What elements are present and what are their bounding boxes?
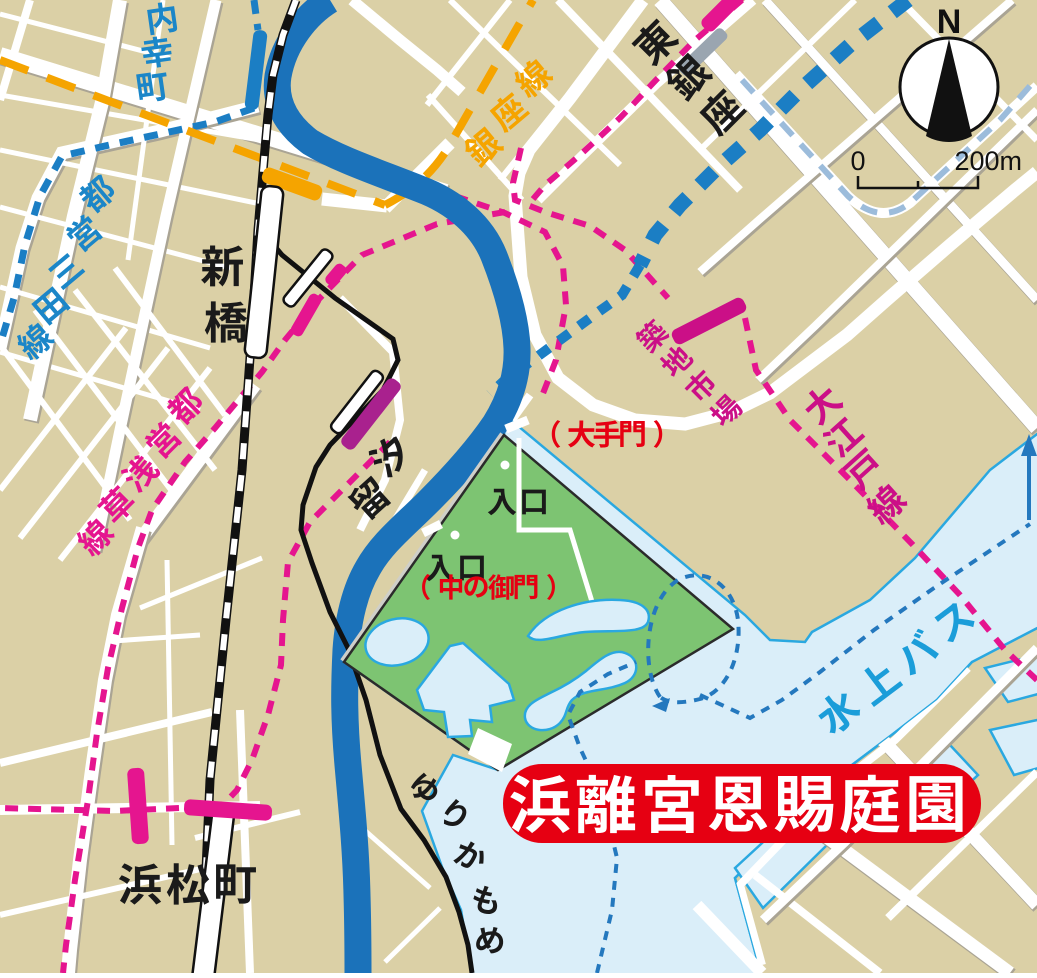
svg-text:200m: 200m [954,146,1022,176]
svg-text:0: 0 [850,146,865,176]
svg-text:N: N [937,3,962,41]
